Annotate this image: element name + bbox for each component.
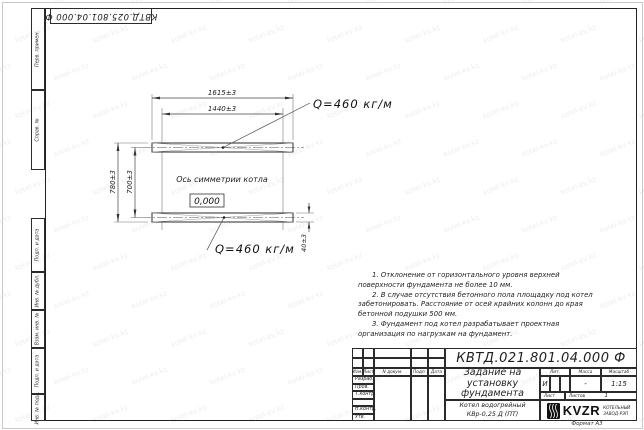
- col-label: Подп.: [413, 370, 426, 375]
- lit-cell-2: [550, 376, 560, 392]
- mass-header: Масса: [570, 368, 601, 376]
- rev-cell: [428, 358, 445, 368]
- rev-cell: [374, 348, 411, 358]
- rev-cell: [428, 348, 445, 358]
- document-title-text: Задание на установку фундамента: [454, 368, 531, 401]
- note-2: 2. В случае отсутствия бетонного пола пл…: [358, 291, 600, 320]
- logo-subtext: КОТЕЛЬНЫЙ ЗАВОД-РЭП: [603, 405, 630, 416]
- sheets-cell: Листов 1: [565, 392, 637, 400]
- row-empty: [352, 399, 374, 407]
- axis-symmetry-label: Ось симметрии котла: [176, 175, 268, 184]
- row-label: Утв.: [355, 415, 365, 420]
- scale-label: Масштаб: [609, 370, 629, 375]
- logo-text: KVZR: [563, 403, 600, 418]
- load-label-top: Q=460 кг/м: [313, 97, 393, 111]
- sheet-label: Лист: [544, 394, 555, 399]
- logo-sub-line1: КОТЕЛЬНЫЙ: [603, 405, 630, 410]
- sig-col-podp: [411, 376, 428, 421]
- product-name-text: Котел водогрейный КВр-0,25 Д (ПТ): [456, 402, 529, 418]
- mass-value: -: [584, 380, 587, 388]
- row-nkontr: Н.контр.: [352, 406, 374, 414]
- mass-value-cell: -: [570, 376, 601, 392]
- sig-col-doc: [374, 376, 411, 421]
- note-3: 3. Фундамент под котел разрабатывает про…: [358, 320, 600, 340]
- kvzr-logo-icon: [547, 403, 560, 419]
- col-label: Дата: [431, 370, 442, 375]
- logo-sub-line2: ЗАВОД-РЭП: [603, 411, 630, 416]
- load-label-bottom: Q=460 кг/м: [215, 242, 295, 256]
- sheets-value: 1: [605, 393, 609, 399]
- row-label: Пров.: [355, 385, 369, 390]
- col-list: Лист: [363, 368, 374, 376]
- col-label: Лист: [363, 370, 374, 375]
- scale-header: Масштаб: [601, 368, 637, 376]
- format-label: Формат А3: [552, 421, 622, 427]
- col-izm: Изм.: [352, 368, 363, 376]
- row-prov: Пров.: [352, 384, 374, 392]
- company-logo-cell: KVZR КОТЕЛЬНЫЙ ЗАВОД-РЭП: [540, 400, 637, 421]
- sheets-label: Листов: [569, 394, 585, 399]
- col-label: N докум.: [383, 370, 403, 375]
- note-1: 1. Отклонение от горизонтального уровня …: [358, 271, 600, 291]
- technical-notes: 1. Отклонение от горизонтального уровня …: [358, 271, 600, 340]
- scale-value: 1:15: [611, 380, 627, 388]
- row-label: Разраб.: [355, 377, 374, 382]
- lit-header: Лит.: [540, 368, 570, 376]
- rev-cell: [352, 348, 363, 358]
- lit-cell-3: [560, 376, 570, 392]
- dim-left-outer: 780±3: [109, 170, 117, 194]
- dim-top-outer: 1615±3: [208, 89, 236, 97]
- sig-col-data: [428, 376, 445, 421]
- scale-value-cell: 1:15: [601, 376, 637, 392]
- mass-label: Масса: [579, 370, 593, 375]
- col-doc: N докум.: [374, 368, 411, 376]
- lit-value-cell: И: [540, 376, 550, 392]
- designation-text: КВТД.021.801.04.000 Ф: [456, 351, 626, 366]
- dim-top-inner: 1440±3: [208, 105, 236, 113]
- row-razrab: Разраб.: [352, 376, 374, 384]
- row-tkontr: Т.контр.: [352, 391, 374, 399]
- rev-cell: [352, 358, 363, 368]
- lit-value: И: [542, 380, 547, 388]
- rev-cell: [411, 358, 428, 368]
- rev-cell: [363, 358, 374, 368]
- level-mark: 0,000: [194, 197, 220, 207]
- lit-label: Лит.: [550, 370, 560, 375]
- dim-right: 40±3: [300, 234, 308, 252]
- col-data: Дата: [428, 368, 445, 376]
- drawing-sheet: kotel-kv.kzkotel-kv.kzkotel-kv.kzkotel-k…: [0, 0, 644, 430]
- col-podp: Подп.: [411, 368, 428, 376]
- rev-cell: [363, 348, 374, 358]
- title-block-designation: КВТД.021.801.04.000 Ф: [445, 348, 637, 368]
- document-title: Задание на установку фундамента: [445, 368, 540, 400]
- product-name: Котел водогрейный КВр-0,25 Д (ПТ): [445, 400, 540, 421]
- col-label: Изм.: [352, 370, 362, 375]
- dim-left-inner: 700±3: [126, 170, 134, 194]
- rev-cell: [374, 358, 411, 368]
- sheet-cell: Лист: [540, 392, 565, 400]
- row-utv: Утв.: [352, 414, 374, 422]
- row-label: Т.контр.: [355, 392, 376, 397]
- rev-cell: [411, 348, 428, 358]
